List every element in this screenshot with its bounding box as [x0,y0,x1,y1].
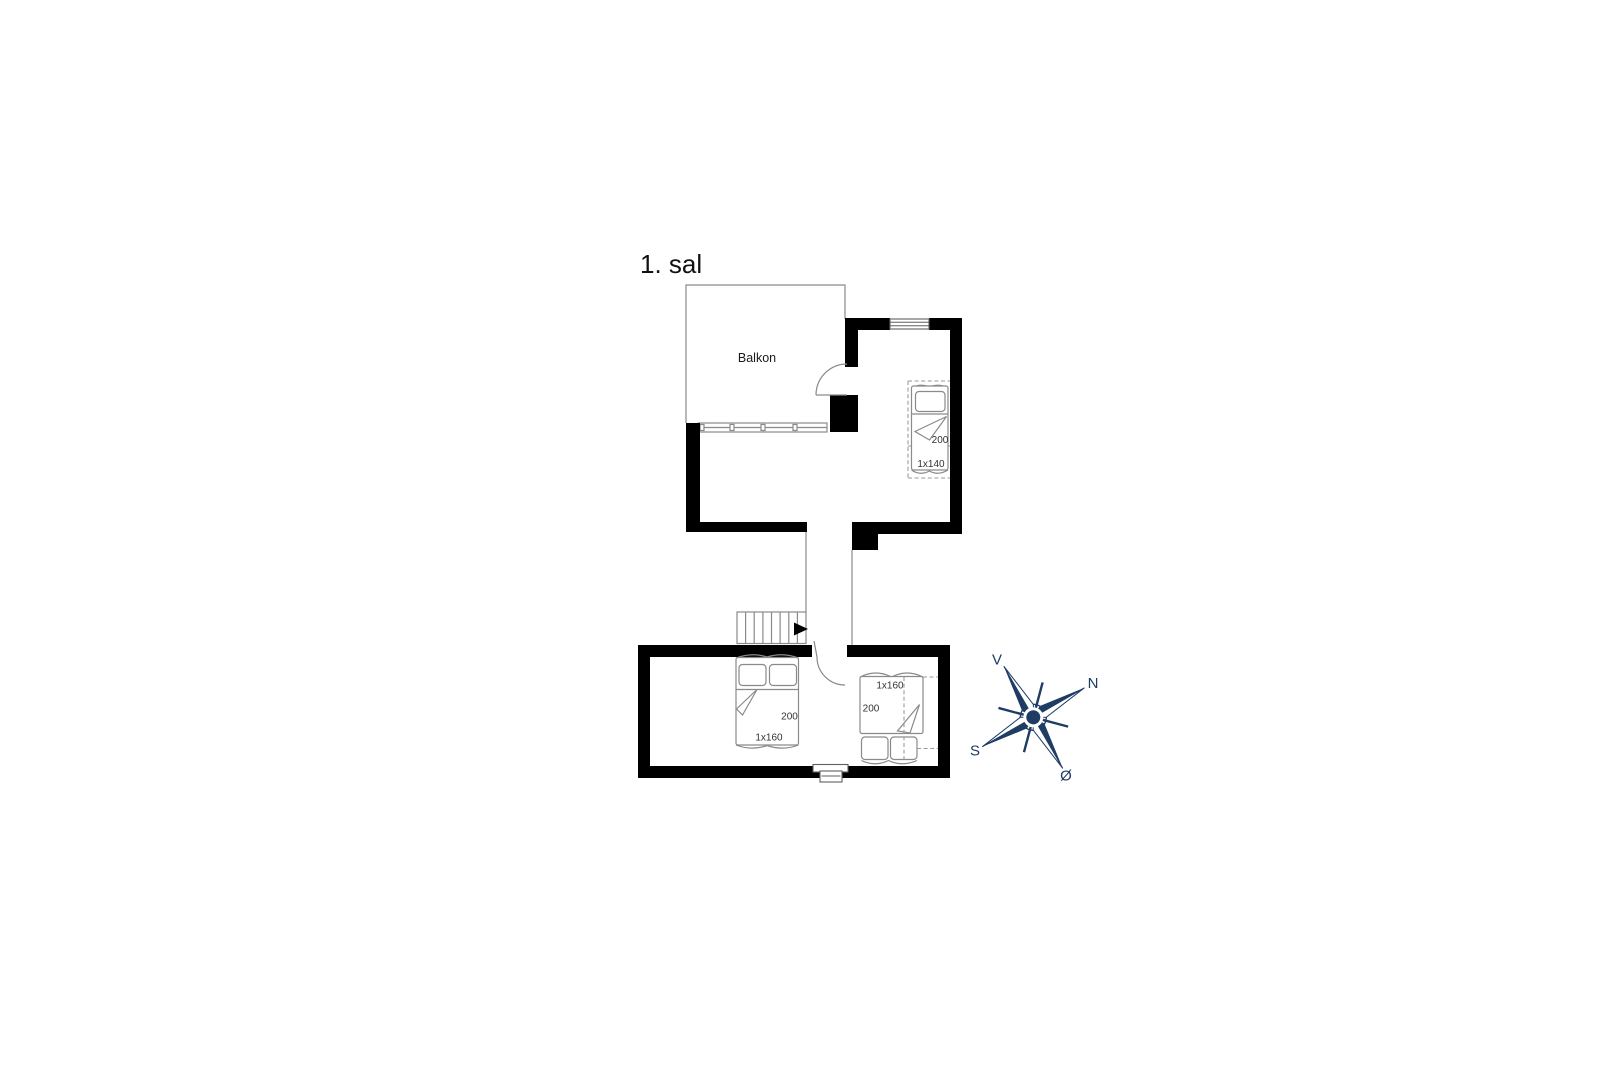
wall-lower-room-left [638,645,650,778]
compass-label-north: N [1088,675,1099,692]
window-upper-room [890,319,929,329]
wall-top-left-of-window [845,318,890,330]
wall-balcony-corner [830,395,858,432]
wall-hall-bottom [686,522,807,532]
balcony-door [816,364,847,395]
wall-hall-left [686,423,700,532]
bedroom-door [814,641,845,685]
bed-second-double: 1x160 200 [860,673,938,764]
compass-label-west: V [992,652,1002,669]
wall-lower-room-top-right [847,645,950,657]
balcony: Balkon [686,285,845,432]
bed-length-label: 200 [932,435,949,446]
compass-rose: V N S Ø [953,637,1114,798]
wall-lower-room-bottom [638,766,950,778]
balcony-label: Balkon [738,351,776,365]
bed-length-label: 200 [863,704,880,715]
floor-title: 1. sal [640,249,702,279]
bed-size-label: 1x160 [755,733,783,744]
balcony-railing [698,423,827,432]
staircase [737,612,808,644]
stairwell-opening [806,532,852,645]
floor-plan-canvas: 1. sal Balkon [0,0,1600,1066]
bed-size-label: 1x140 [917,459,945,470]
bed-length-label: 200 [781,712,798,723]
bed-upper-single: 200 1x140 [908,381,950,478]
bed-size-label: 1x160 [876,681,904,692]
wall-lower-room-right [938,645,950,778]
wall-stair-step-block [852,522,878,550]
bed-master-double: 200 1x160 [736,655,799,748]
compass-label-south: S [970,743,980,760]
compass-label-east: Ø [1060,768,1072,785]
wall-upper-room-right [950,318,962,534]
